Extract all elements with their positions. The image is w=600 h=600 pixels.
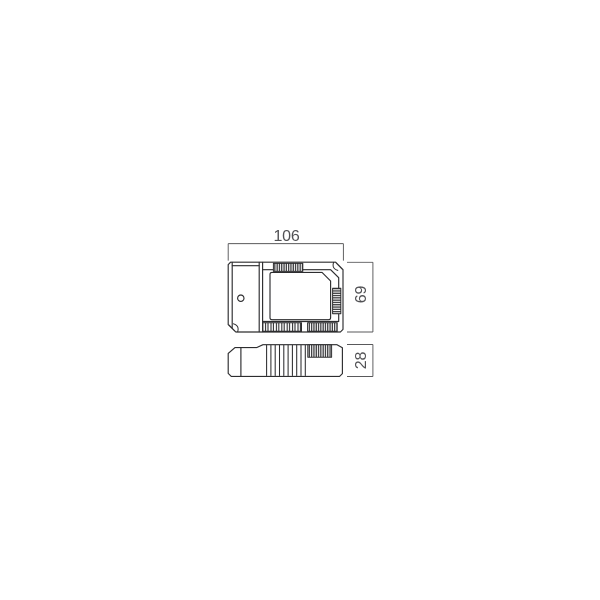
vent-grille-bottom-right [308, 323, 338, 331]
label-area [270, 272, 331, 319]
vent-grille-bottom-left [263, 323, 302, 331]
dimension-depth-label: 28 [353, 352, 370, 370]
side-vent-grille [308, 345, 332, 357]
dimension-width: 106 [228, 228, 343, 261]
side-view [228, 345, 342, 377]
vent-grille-right [333, 288, 341, 314]
screw-hole [238, 295, 244, 301]
top-view [228, 262, 343, 332]
technical-drawing: 106 69 28 [0, 0, 600, 600]
vent-grille-top [273, 263, 302, 271]
dimension-width-lines [228, 244, 343, 261]
technical-drawing-canvas: 106 69 28 [0, 0, 600, 600]
dimension-height: 69 [347, 262, 373, 332]
dimension-height-label: 69 [353, 286, 370, 304]
dimension-depth: 28 [347, 345, 373, 377]
dimension-width-label: 106 [273, 228, 299, 245]
